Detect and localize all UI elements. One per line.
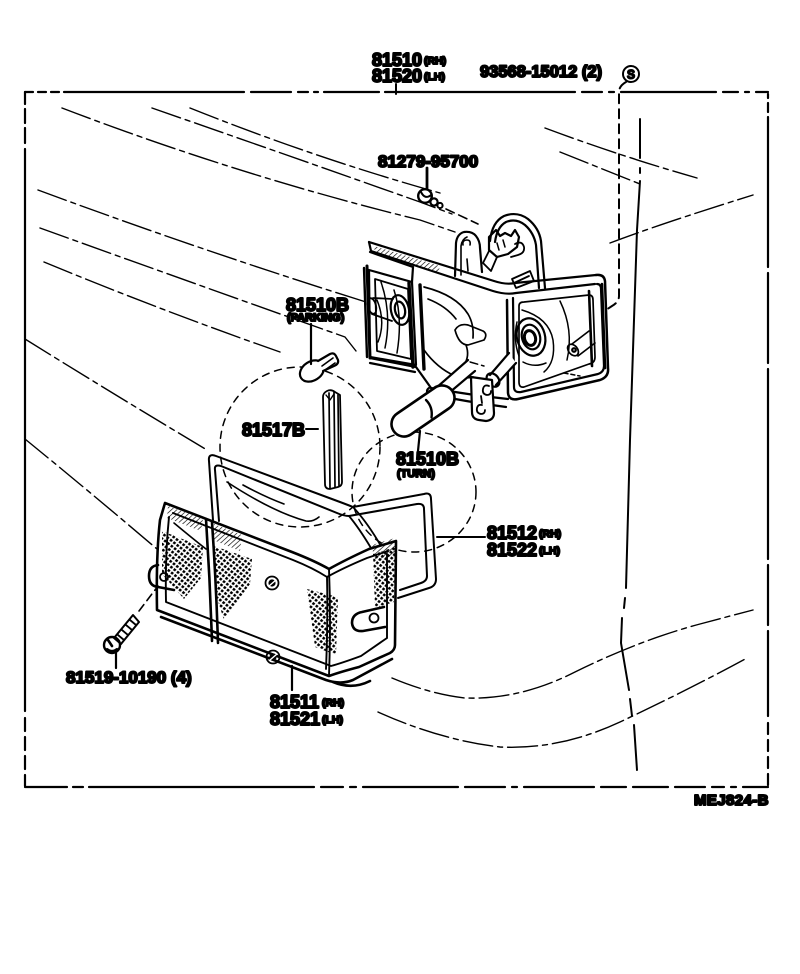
svg-text:(RH): (RH) [322, 697, 344, 709]
svg-text:S: S [627, 70, 635, 82]
svg-text:(RH): (RH) [424, 55, 446, 67]
svg-text:(RH): (RH) [539, 528, 561, 540]
svg-text:(LH): (LH) [424, 71, 445, 83]
svg-text:81520: 81520 [372, 66, 422, 86]
svg-text:81517B: 81517B [242, 420, 305, 440]
svg-text:81521: 81521 [270, 709, 320, 729]
svg-text:(LH): (LH) [322, 714, 343, 726]
svg-text:93568-15012 (2): 93568-15012 (2) [480, 63, 602, 81]
svg-text:81279-95700: 81279-95700 [378, 152, 478, 171]
svg-text:(TURN): (TURN) [397, 468, 435, 480]
svg-text:(PARKING): (PARKING) [287, 312, 345, 324]
svg-text:81510B: 81510B [396, 449, 459, 469]
svg-text:(LH): (LH) [539, 545, 560, 557]
svg-text:81519-10190 (4): 81519-10190 (4) [66, 668, 192, 687]
svg-text:81522: 81522 [487, 540, 537, 560]
svg-text:MEJ824-B: MEJ824-B [694, 792, 769, 809]
